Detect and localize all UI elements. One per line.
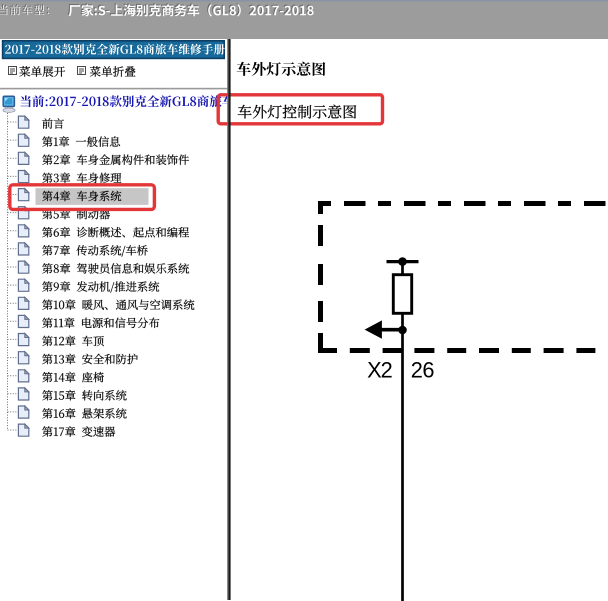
svg-text:X2: X2 (367, 358, 393, 383)
svg-text:26: 26 (411, 358, 435, 383)
